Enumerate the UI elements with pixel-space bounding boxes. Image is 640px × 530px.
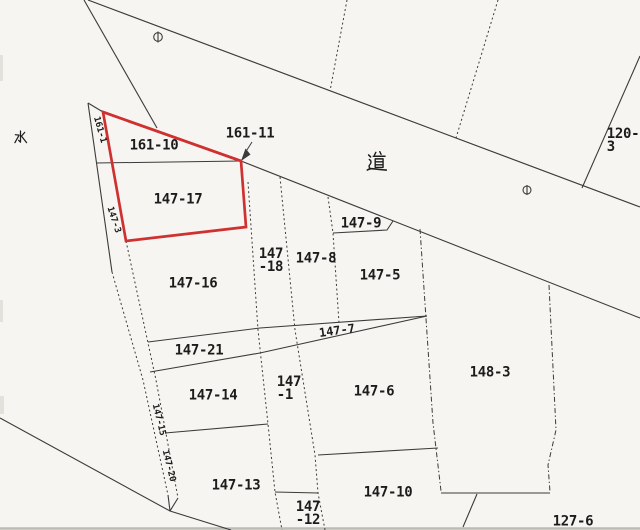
parcel-label-147-12: 147 -12	[296, 501, 320, 527]
parcel-label-147-9: 147-9	[341, 218, 382, 231]
road-stroke	[375, 159, 383, 168]
cadastral-map: 161-10 161-11 120-3 147-17 147-9 147 -18…	[0, 0, 640, 530]
highlighted-parcel-outline	[103, 112, 246, 241]
strip-tip-top-line	[88, 103, 103, 112]
lower-left-diagonal-line	[0, 418, 231, 530]
parcel-label-120-3: 120-3	[607, 128, 640, 154]
corridor-right-dotted-line	[280, 177, 325, 530]
parcel-label-147-13: 147-13	[212, 480, 261, 493]
parcel-147-6-bottom-line	[318, 448, 438, 455]
parcel-label-147-17: 147-17	[154, 194, 203, 207]
upper-parcel-dotted-line	[330, 0, 347, 91]
parcel-148-3-right-line	[548, 285, 556, 492]
road-stroke	[369, 160, 371, 169]
parcel-127-6-boundary-line	[463, 494, 477, 527]
water-stroke	[21, 132, 26, 142]
parcel-label-147-21: 147-21	[175, 345, 224, 358]
parcel-label-147-14: 147-14	[189, 390, 238, 403]
parcel-label-147-5: 147-5	[360, 270, 401, 283]
water-kanji-glyph	[13, 130, 28, 145]
upper-left-boundary-line	[84, 0, 157, 128]
road-kanji-glyph	[366, 151, 387, 172]
parcel-147-14-bottom-line	[165, 424, 268, 433]
parcel-label-161-10: 161-10	[130, 140, 179, 153]
parcel-label-147-10: 147-10	[364, 487, 413, 500]
leader-arrowhead-icon	[241, 149, 251, 162]
parcel-120-3-boundary-line	[582, 56, 640, 188]
parcel-148-3-left-line	[420, 229, 441, 491]
highlighted-parcel-top-edge	[103, 112, 241, 161]
parcel-label-127-6: 127-6	[553, 516, 594, 529]
upper-parcel-dotted-line-2	[456, 0, 498, 138]
parcel-label-148-3: 148-3	[470, 367, 511, 380]
road-stroke	[369, 155, 371, 157]
water-kanji-label	[13, 130, 28, 145]
parcel-147-21-top-line	[148, 316, 427, 342]
road-stroke	[375, 152, 382, 155]
scan-smudge	[0, 300, 3, 322]
parcel-label-147-6: 147-6	[354, 386, 395, 399]
road-kanji-label	[366, 151, 387, 172]
scan-smudge	[0, 396, 4, 414]
road-top-edge-line	[88, 0, 640, 207]
parcel-161-10-147-17-divider	[96, 161, 241, 163]
parcel-label-147-8: 147-8	[296, 253, 337, 266]
water-stroke	[15, 135, 19, 143]
strip-bottom-tip-lines	[168, 495, 178, 511]
parcel-label-147-16: 147-16	[169, 278, 218, 291]
parcel-label-147-18: 147 -18	[259, 248, 283, 274]
parcel-label-147-1: 147 -1	[277, 376, 301, 402]
parcel-label-161-11: 161-11	[226, 128, 275, 141]
scan-smudge	[0, 55, 3, 81]
road-stroke	[367, 169, 386, 170]
parcel-147-1-bottom-line	[275, 492, 318, 493]
